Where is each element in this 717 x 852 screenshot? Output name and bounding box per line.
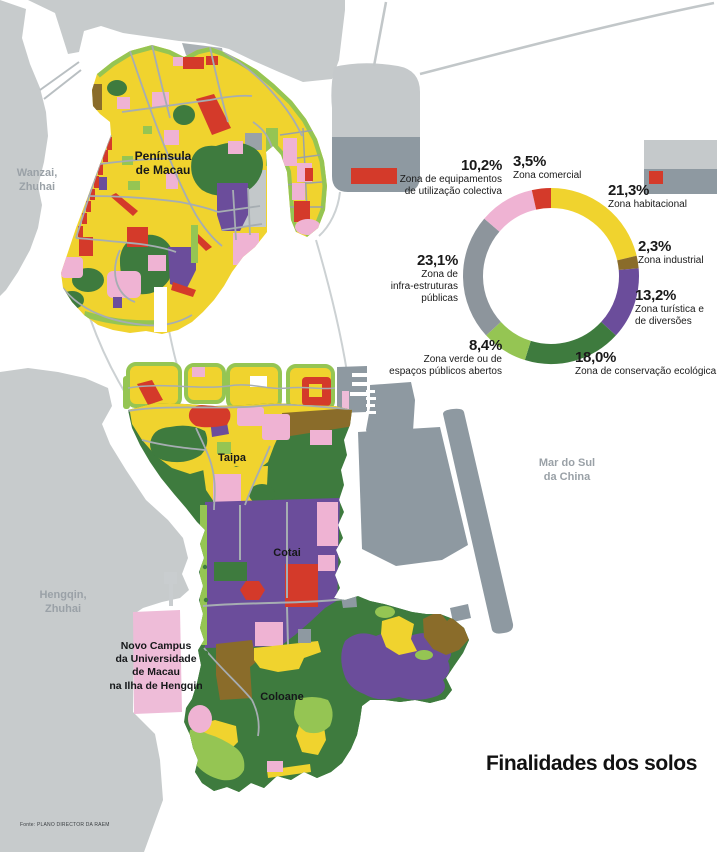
campus-label-line2: da Universidade xyxy=(115,653,196,665)
legend-label-line: Zona turística e xyxy=(635,304,704,316)
legend-pct: 3,5% xyxy=(513,153,581,170)
donut-segment xyxy=(534,198,551,200)
coloane-label: Coloane xyxy=(260,691,303,703)
wanzai-label-line1: Wanzai, xyxy=(17,167,58,179)
legend-label-line: Zona habitacional xyxy=(608,199,687,211)
legend-label-line: Zona industrial xyxy=(638,255,704,267)
wanzai-pier xyxy=(40,62,81,99)
legend-label-line: infra-estruturas xyxy=(391,281,458,293)
legend-industrial: 2,3% Zona industrial xyxy=(638,238,704,267)
hengqin-label-line1: Hengqin, xyxy=(39,589,86,601)
hzmb-link-north xyxy=(374,2,386,66)
port-and-airport xyxy=(337,366,513,634)
campus-label-line3: de Macau xyxy=(132,666,180,678)
legend-comercial: 3,5% Zona comercial xyxy=(513,153,581,182)
legend-pct: 23,1% xyxy=(391,252,458,269)
legend-label-line: Zona de xyxy=(391,269,458,281)
peninsula-label-line2: de Macau xyxy=(136,163,191,177)
donut-segment xyxy=(473,225,493,329)
legend-habitacional: 21,3% Zona habitacional xyxy=(608,182,687,211)
legend-label-line: públicas xyxy=(391,293,458,305)
legend-label-line: de diversões xyxy=(635,316,704,328)
campus-label-line4: na Ilha de Hengqin xyxy=(109,680,202,692)
taipa-label: Taipa xyxy=(218,452,247,464)
legend-pct: 10,2% xyxy=(400,157,502,174)
legend-label-line: de utilização colectiva xyxy=(400,186,502,198)
macau-land-use-map: Wanzai, Zhuhai Península de Macau Taipa … xyxy=(0,0,717,852)
sea-label-line2: da China xyxy=(544,471,591,483)
page-title: Finalidades dos solos xyxy=(486,752,697,776)
legend-label-line: Zona verde ou de xyxy=(389,354,502,366)
sea-label-line1: Mar do Sul xyxy=(539,457,595,469)
donut-segment xyxy=(627,258,629,269)
legend-label-line: Zona comercial xyxy=(513,170,581,182)
hzmb-bridge xyxy=(420,3,714,74)
legend-conservacao: 18,0% Zona de conservação ecológica xyxy=(575,349,716,378)
legend-verde: 8,4% Zona verde ou de espaços públicos a… xyxy=(389,337,502,378)
wanzai-label-line2: Zhuhai xyxy=(19,181,55,193)
legend-pct: 13,2% xyxy=(635,287,704,304)
legend-pct: 8,4% xyxy=(389,337,502,354)
legend-pct: 2,3% xyxy=(638,238,704,255)
donut-segment xyxy=(609,269,629,329)
legend-label-line: Zona de conservação ecológica xyxy=(575,366,716,378)
land-use-donut-chart xyxy=(473,198,629,354)
hengqin-label-line2: Zhuhai xyxy=(45,603,81,615)
legend-infraestruturas: 23,1% Zona de infra-estruturas públicas xyxy=(391,252,458,305)
source-credit: Fonte: PLANO DIRECTOR DA RAEM xyxy=(20,822,110,828)
amizade-bridge xyxy=(316,240,347,372)
legend-pct: 18,0% xyxy=(575,349,716,366)
cotai-label: Cotai xyxy=(273,547,301,559)
peninsula-label-line1: Península xyxy=(135,149,192,163)
legend-turistica: 13,2% Zona turística e de diversões xyxy=(635,287,704,328)
campus-label-line1: Novo Campus xyxy=(121,640,192,652)
legend-label-line: espaços públicos abertos xyxy=(389,366,502,378)
legend-label-line: Zona de equipamentos xyxy=(400,174,502,186)
nam-van-lake xyxy=(154,287,167,332)
taipa-north-blocks xyxy=(123,364,335,409)
land-use-infographic: Wanzai, Zhuhai Península de Macau Taipa … xyxy=(0,0,717,852)
legend-pct: 21,3% xyxy=(608,182,687,199)
legend-equipamentos: 10,2% Zona de equipamentos de utilização… xyxy=(400,157,502,198)
donut-segment xyxy=(492,200,534,225)
peninsula-landmass xyxy=(55,38,335,343)
